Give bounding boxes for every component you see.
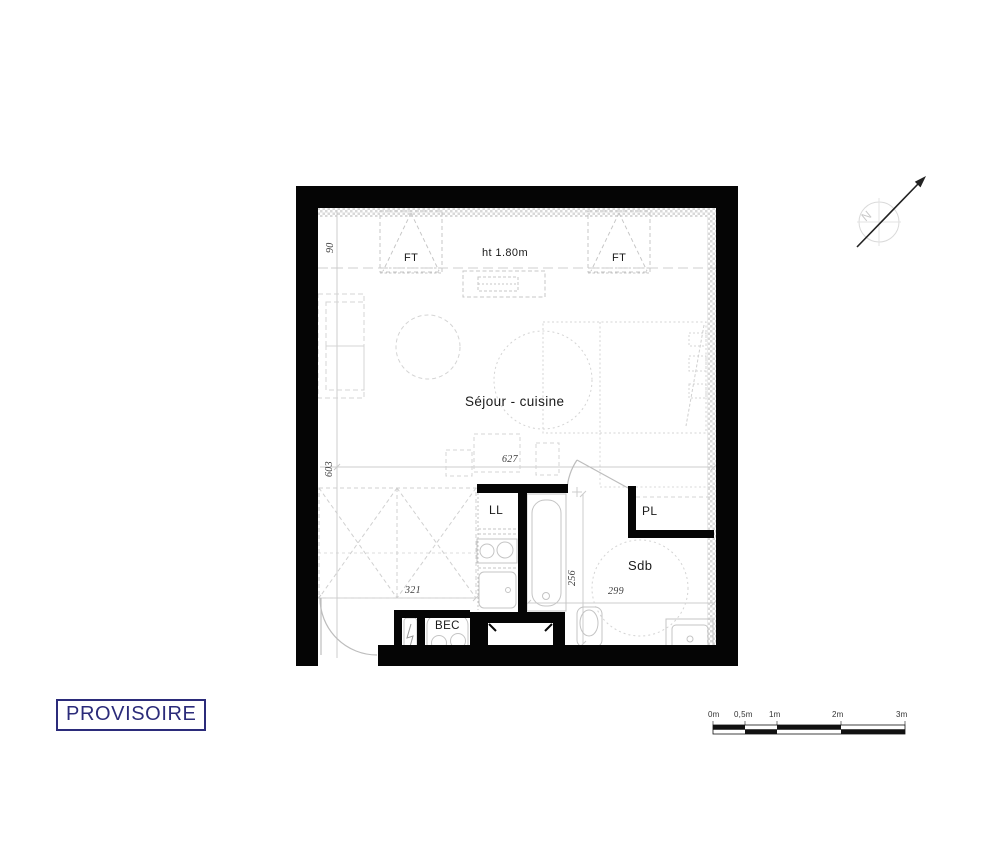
wall-bec-top — [394, 610, 470, 618]
scale-label-0m: 0m — [708, 711, 720, 719]
floor-plan-sheet: Séjour - cuisine Sdb PL LL BEC FT FT ht … — [0, 0, 1000, 857]
bathroom-door-arc — [567, 460, 577, 490]
wall-right — [716, 186, 738, 666]
wall-closet-horizontal — [628, 530, 714, 538]
wall-bec-left — [394, 610, 402, 666]
insulation-hatch — [318, 208, 716, 645]
duct-shaft — [470, 612, 565, 662]
room-label-bathroom: Sdb — [628, 559, 652, 572]
wall-bec-divider — [417, 617, 425, 666]
scale-label-2m: 2m — [832, 711, 844, 719]
wall-left — [296, 186, 318, 666]
label-closet: PL — [642, 505, 657, 517]
label-washing-machine: LL — [489, 504, 503, 516]
dim-bathroom-depth: 256 — [568, 570, 578, 586]
dim-room-width: 627 — [502, 455, 518, 465]
living-room-furniture — [318, 294, 706, 476]
room-label-living-kitchen: Séjour - cuisine — [465, 395, 564, 409]
wall-kitchen-bath — [518, 484, 527, 620]
label-roof-window-left: FT — [404, 253, 418, 264]
dim-top-offset: 90 — [326, 242, 336, 253]
entry-closet-symbol — [319, 488, 476, 598]
scale-label-1m: 1m — [769, 711, 781, 719]
scale-bar — [713, 721, 905, 734]
bathtub-icon — [527, 494, 566, 611]
dim-bathroom-width: 299 — [608, 587, 624, 597]
scale-label-05m: 0,5m — [734, 711, 753, 719]
label-ceiling-height: ht 1.80m — [482, 248, 528, 259]
dim-room-depth: 603 — [325, 461, 335, 477]
label-roof-window-right: FT — [612, 253, 626, 264]
turning-circle — [592, 540, 688, 636]
bathroom-door-leaf — [577, 460, 628, 488]
label-water-heater: BEC — [435, 621, 460, 633]
dim-entry-width: 321 — [405, 586, 421, 596]
wall-top — [296, 186, 738, 208]
entry-door-arc — [320, 598, 377, 655]
provisional-stamp: PROVISOIRE — [56, 699, 206, 731]
scale-label-3m: 3m — [896, 711, 908, 719]
